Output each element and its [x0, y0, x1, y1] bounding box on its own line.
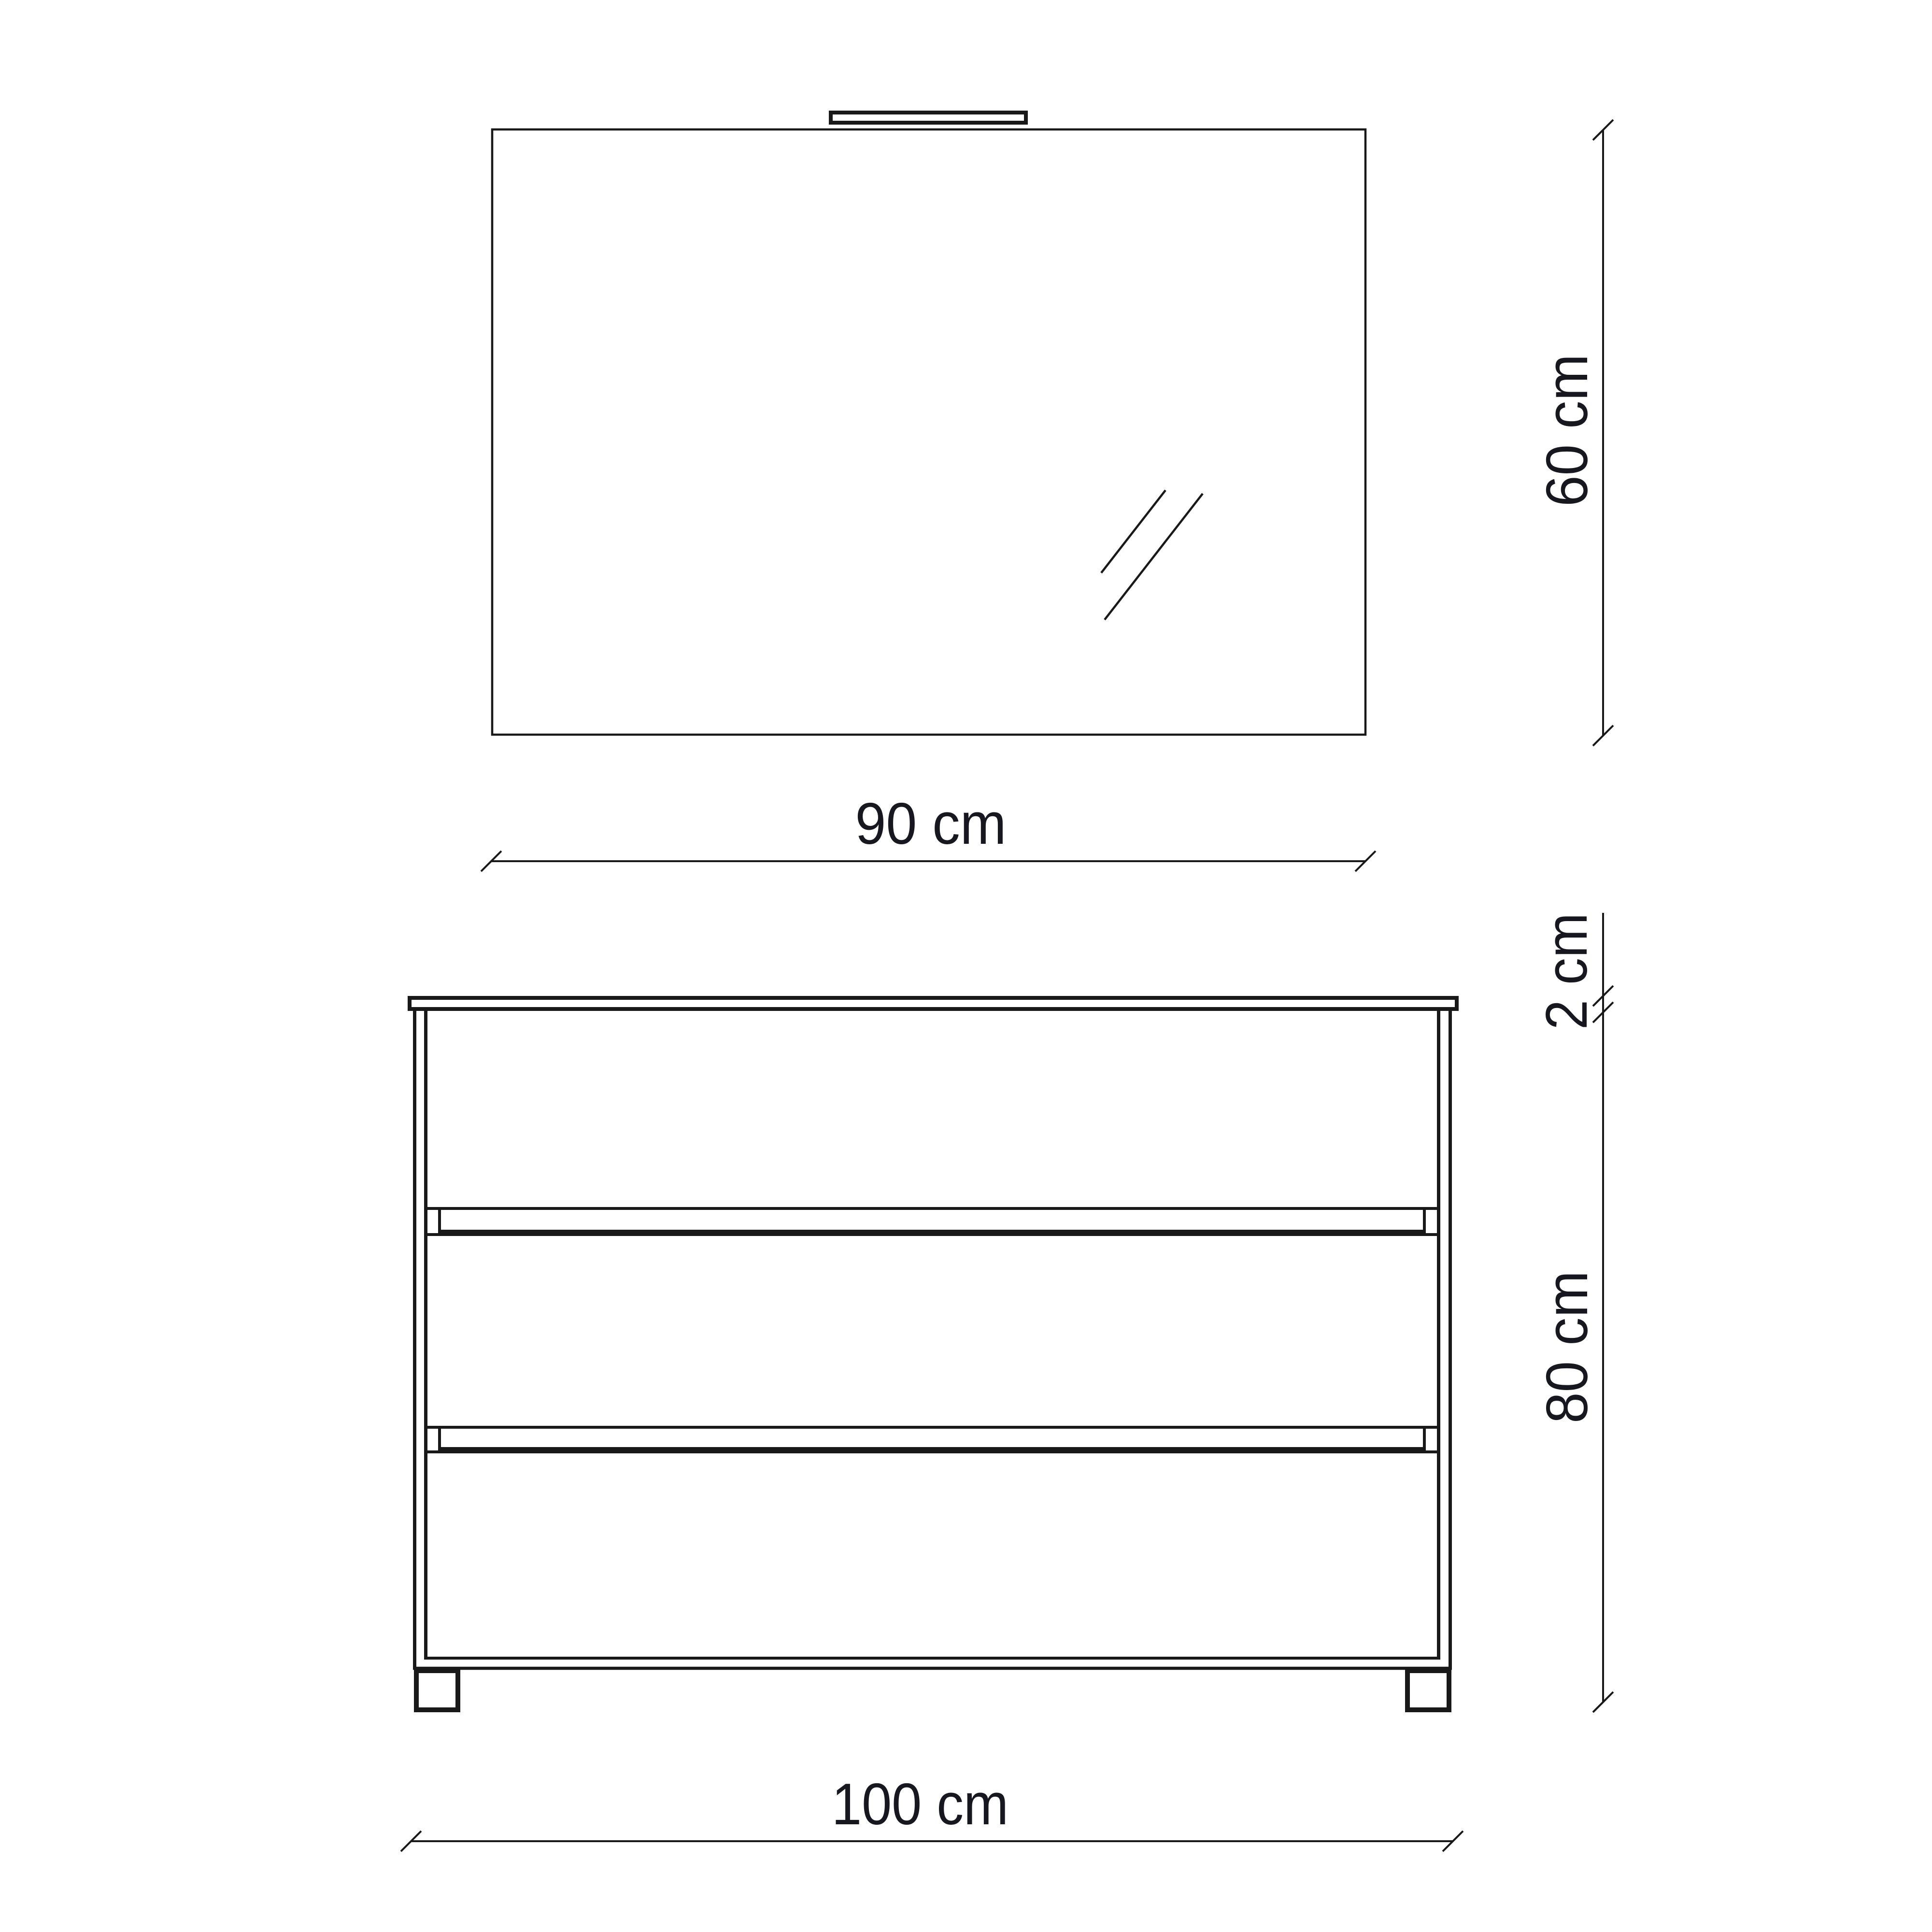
svg-text:60 cm: 60 cm — [1534, 354, 1600, 507]
svg-text:2 cm: 2 cm — [1534, 913, 1599, 1030]
svg-text:90 cm: 90 cm — [855, 791, 1007, 856]
svg-text:100 cm: 100 cm — [832, 1771, 1009, 1837]
svg-text:80 cm: 80 cm — [1534, 1271, 1600, 1423]
